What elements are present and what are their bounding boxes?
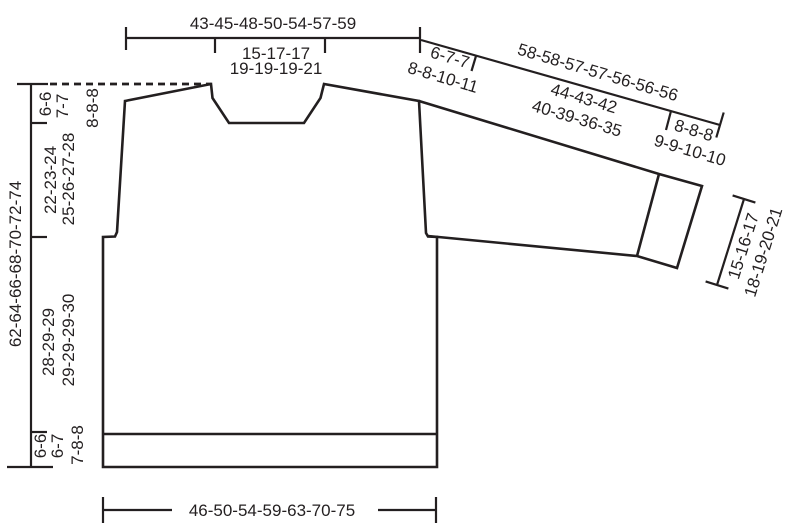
cuff-separator-line bbox=[637, 174, 659, 256]
neck-rib-height-label-line2: 7-7 bbox=[53, 94, 72, 119]
chest-width-label: 43-45-48-50-54-57-59 bbox=[190, 14, 356, 33]
hem-rib-height-label-line2: 6-7 bbox=[48, 434, 67, 459]
yoke-height-label-line1: 22-23-24 bbox=[41, 146, 60, 214]
yoke-height-label-line2: 25-26-27-28 bbox=[59, 133, 78, 226]
sleeve-outline bbox=[419, 101, 702, 268]
body-height-label-line2: 29-29-29-30 bbox=[59, 294, 78, 387]
hem-width-label: 46-50-54-59-63-70-75 bbox=[189, 501, 355, 520]
neck-rib-height-label-line3: 8-8-8 bbox=[83, 88, 102, 128]
schematic-canvas: 43-45-48-50-54-57-59 15-17-17 19-19-19-2… bbox=[0, 0, 800, 531]
knitting-schematic: 43-45-48-50-54-57-59 15-17-17 19-19-19-2… bbox=[0, 0, 800, 531]
total-length-label: 62-64-66-68-70-72-74 bbox=[6, 181, 25, 347]
neck-width-label-line2: 19-19-19-21 bbox=[230, 59, 323, 78]
hem-rib-height-label-line3: 7-8-8 bbox=[68, 425, 87, 465]
body-height-label-line1: 28-29-29 bbox=[39, 308, 58, 376]
body-outline bbox=[103, 84, 437, 467]
